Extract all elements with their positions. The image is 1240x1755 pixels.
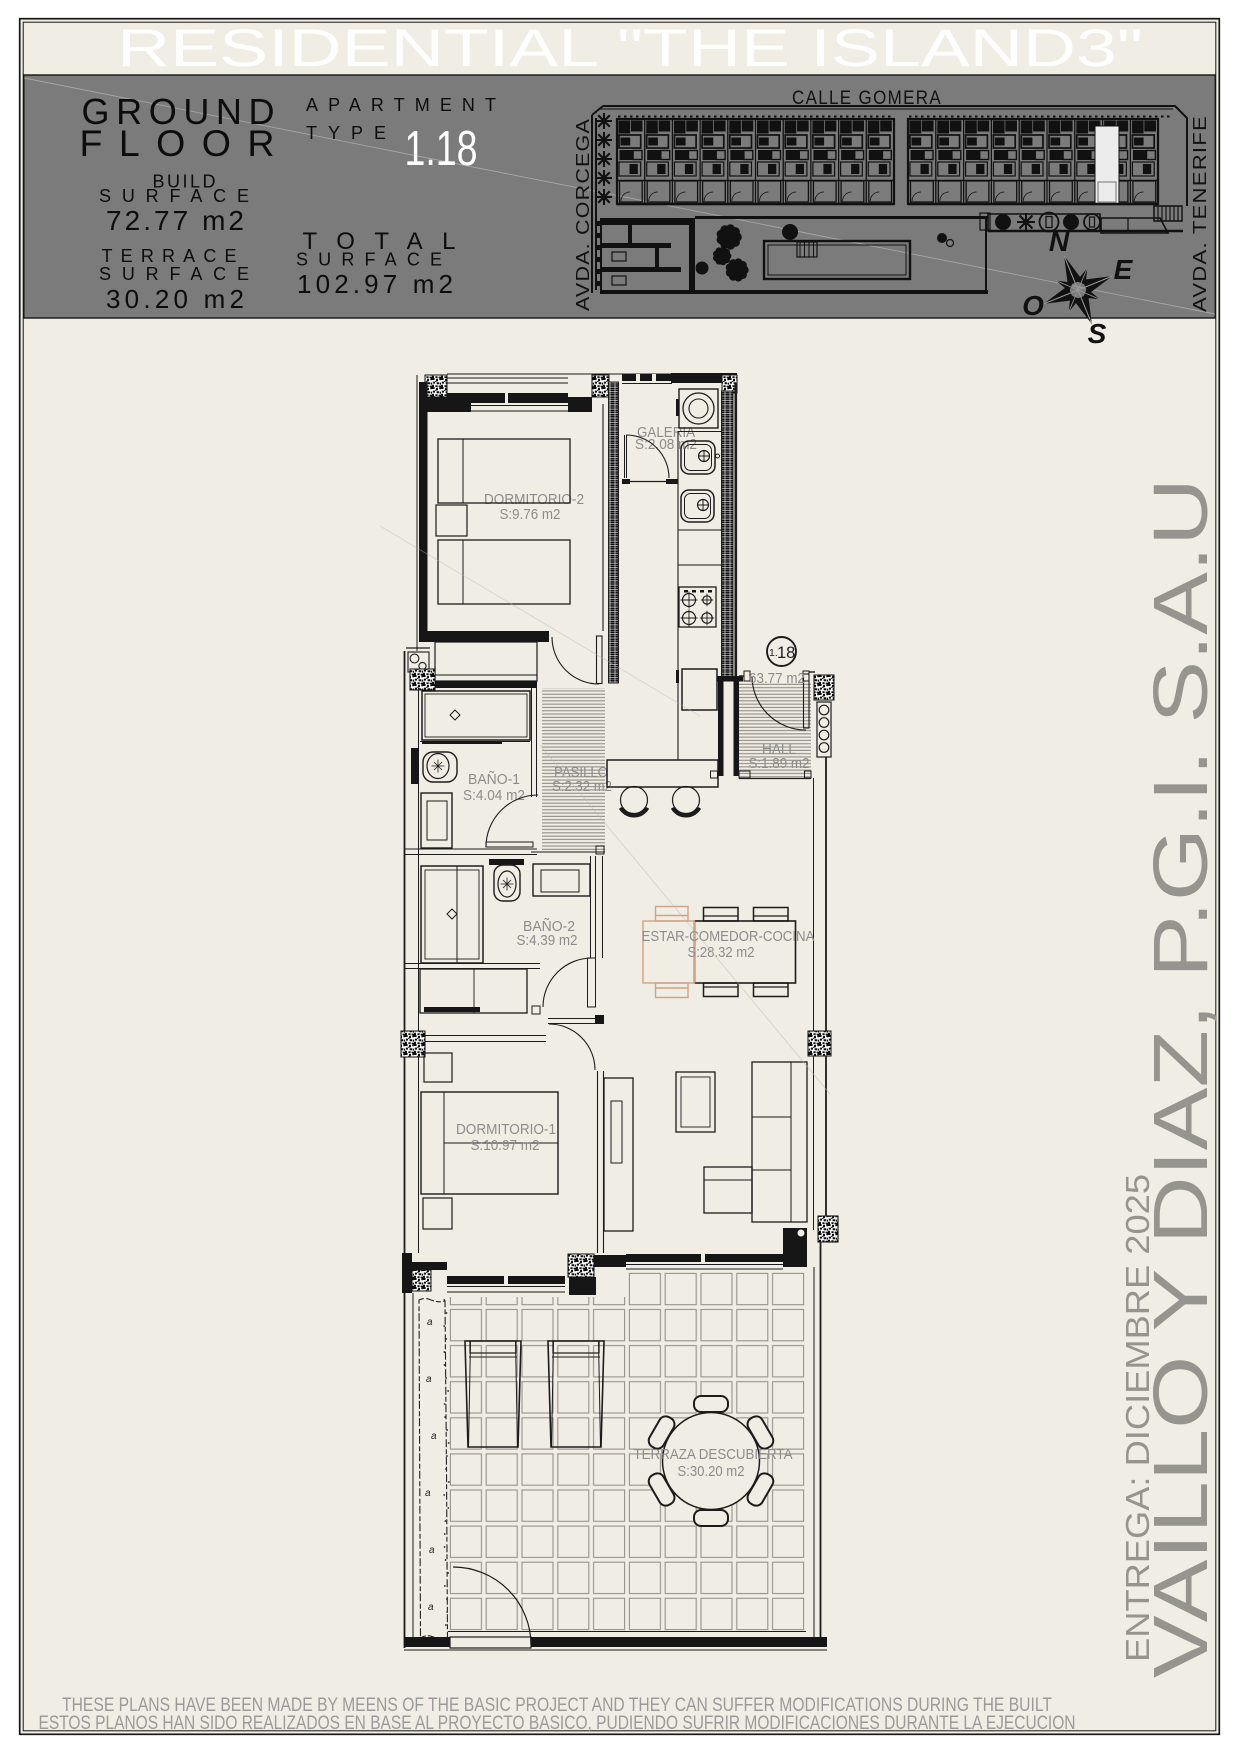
svg-text:1.18: 1.18 [405,122,478,176]
svg-text:S: S [1088,318,1107,349]
svg-text:a: a [427,1317,433,1328]
svg-text:E: E [1114,254,1134,285]
svg-text:18: 18 [777,644,795,662]
svg-text:a: a [429,1545,435,1556]
svg-text:S:1.89 m2: S:1.89 m2 [749,755,810,772]
svg-text:TERRAZA DESCUBIERTA: TERRAZA DESCUBIERTA [634,1446,793,1463]
svg-text:O: O [1022,290,1044,321]
svg-text:63.77 m2: 63.77 m2 [749,670,805,687]
svg-text:TERRACE: TERRACE [102,246,237,266]
svg-text:S:9.76 m2: S:9.76 m2 [500,506,561,523]
svg-text:a: a [428,1602,434,1613]
svg-text:DORMITORIO-1: DORMITORIO-1 [456,1121,556,1138]
svg-text:S:10.97 m2: S:10.97 m2 [471,1137,540,1154]
svg-text:S:28.32 m2: S:28.32 m2 [688,944,755,961]
svg-text:RESIDENTIAL "THE ISLAND3": RESIDENTIAL "THE ISLAND3" [117,19,1143,78]
svg-text:a: a [425,1488,431,1499]
svg-text:ESTAR-COMEDOR-COCINA: ESTAR-COMEDOR-COCINA [642,928,815,945]
svg-text:ESTOS PLANOS HAN SIDO REALIZAD: ESTOS PLANOS HAN SIDO REALIZADOS EN BASE… [39,1712,1076,1734]
svg-text:BAÑO-1: BAÑO-1 [468,771,520,788]
svg-text:S:4.39 m2: S:4.39 m2 [517,932,578,949]
svg-text:BUILD: BUILD [153,172,216,192]
svg-text:72.77 m2: 72.77 m2 [106,205,244,236]
svg-text:a: a [431,1431,437,1442]
svg-text:a: a [426,1374,432,1385]
svg-text:S:4.04 m2: S:4.04 m2 [463,787,525,804]
svg-text:APARTMENT: APARTMENT [306,95,496,115]
svg-text:30.20 m2: 30.20 m2 [106,284,244,314]
svg-text:AVDA. CORCEGA: AVDA. CORCEGA [573,118,593,311]
svg-text:N: N [1049,226,1070,257]
svg-text:S:30.20 m2: S:30.20 m2 [678,1463,745,1480]
svg-text:ENTREGA: DICIEMBRE 2025: ENTREGA: DICIEMBRE 2025 [1119,1174,1156,1662]
svg-text:S:2.32 m2: S:2.32 m2 [552,778,612,795]
svg-text:102.97 m2: 102.97 m2 [297,269,453,299]
svg-text:AVDA. TENERIFE: AVDA. TENERIFE [1190,115,1210,312]
